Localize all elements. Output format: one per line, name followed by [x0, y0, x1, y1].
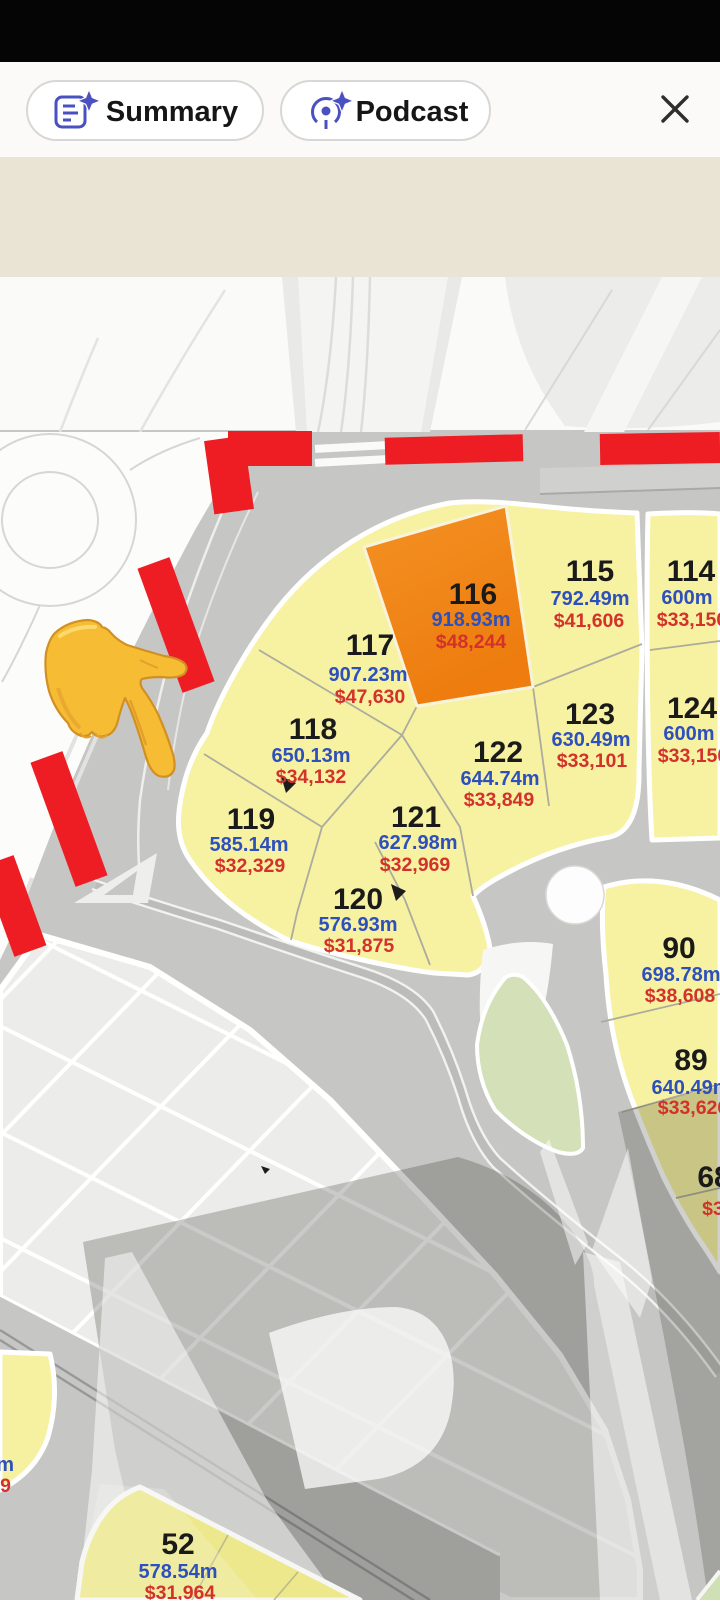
svg-text:627.98m: 627.98m [379, 832, 458, 854]
svg-text:578.54m: 578.54m [139, 1561, 218, 1583]
svg-text:698.78m: 698.78m [642, 964, 720, 986]
svg-text:$48,244: $48,244 [436, 631, 507, 653]
svg-text:116: 116 [449, 578, 497, 611]
svg-text:119: 119 [227, 803, 275, 836]
svg-text:$33,150: $33,150 [657, 609, 720, 631]
svg-text:650.13m: 650.13m [272, 745, 351, 767]
svg-text:114: 114 [667, 555, 716, 588]
svg-text:89: 89 [674, 1044, 707, 1077]
svg-text:630.49m: 630.49m [552, 729, 631, 751]
svg-text:118: 118 [289, 713, 337, 746]
svg-text:m: m [0, 1454, 14, 1476]
svg-text:$31,875: $31,875 [324, 935, 395, 957]
svg-text:123: 123 [565, 698, 615, 731]
svg-text:576.93m: 576.93m [319, 914, 398, 936]
svg-text:$38,608: $38,608 [645, 985, 716, 1007]
svg-text:$32,969: $32,969 [380, 854, 451, 876]
svg-text:122: 122 [473, 736, 523, 769]
svg-text:90: 90 [662, 932, 695, 965]
svg-text:$33,150: $33,150 [658, 745, 720, 767]
svg-text:52: 52 [161, 1528, 194, 1561]
svg-text:$31,964: $31,964 [145, 1582, 216, 1600]
svg-text:124: 124 [667, 692, 717, 725]
svg-text:Podcast: Podcast [356, 96, 469, 128]
svg-text:117: 117 [346, 629, 394, 662]
svg-text:68: 68 [697, 1161, 720, 1194]
svg-text:$41,606: $41,606 [554, 610, 625, 632]
svg-text:$32,329: $32,329 [215, 855, 286, 877]
svg-text:115: 115 [566, 555, 614, 588]
svg-text:120: 120 [333, 883, 383, 916]
svg-text:121: 121 [391, 801, 441, 834]
svg-text:918.93m: 918.93m [432, 609, 511, 631]
svg-text:792.49m: 792.49m [551, 588, 630, 610]
svg-text:$34,132: $34,132 [276, 766, 347, 788]
svg-text:644.74m: 644.74m [461, 768, 540, 790]
svg-text:$33,626: $33,626 [658, 1097, 720, 1119]
svg-text:907.23m: 907.23m [329, 664, 408, 686]
svg-text:600m: 600m [661, 587, 712, 609]
svg-text:$33,101: $33,101 [557, 750, 628, 772]
svg-text:Summary: Summary [106, 96, 238, 128]
svg-text:585.14m: 585.14m [210, 834, 289, 856]
svg-text:9: 9 [0, 1475, 11, 1497]
svg-text:$33,849: $33,849 [464, 789, 535, 811]
svg-text:$47,630: $47,630 [335, 686, 406, 708]
svg-text:640.49m: 640.49m [652, 1077, 720, 1099]
svg-text:$3: $3 [702, 1198, 720, 1220]
svg-text:600m: 600m [663, 723, 714, 745]
